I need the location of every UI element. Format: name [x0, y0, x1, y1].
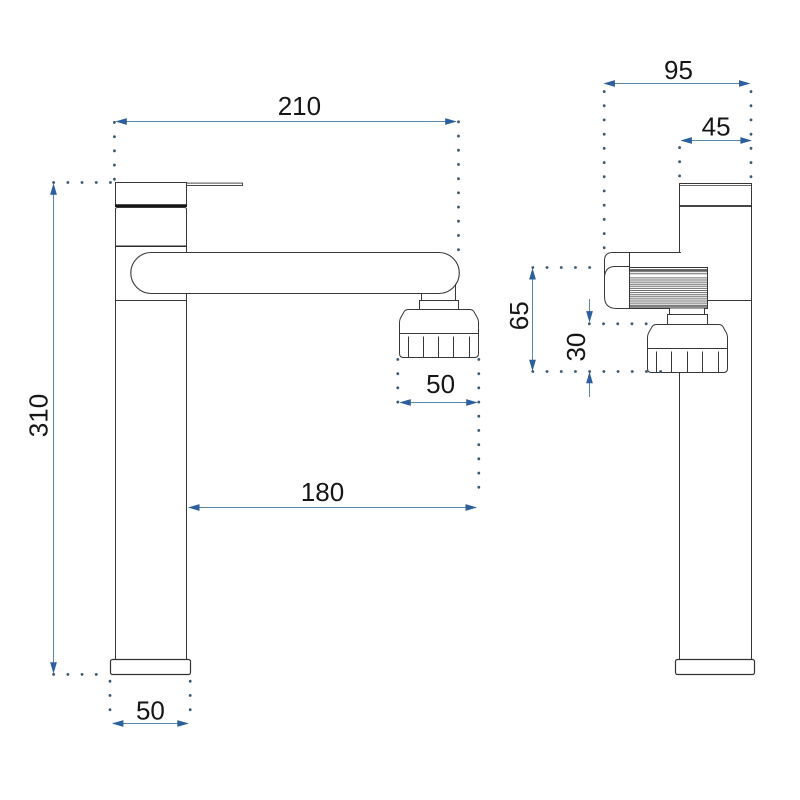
- svg-text:50: 50: [426, 369, 455, 399]
- svg-text:310: 310: [24, 394, 54, 437]
- svg-text:30: 30: [561, 333, 591, 362]
- svg-text:65: 65: [504, 301, 534, 330]
- svg-text:45: 45: [702, 111, 731, 141]
- svg-text:95: 95: [664, 55, 693, 85]
- svg-text:50: 50: [136, 695, 165, 725]
- svg-text:210: 210: [278, 91, 321, 121]
- svg-text:180: 180: [301, 477, 344, 507]
